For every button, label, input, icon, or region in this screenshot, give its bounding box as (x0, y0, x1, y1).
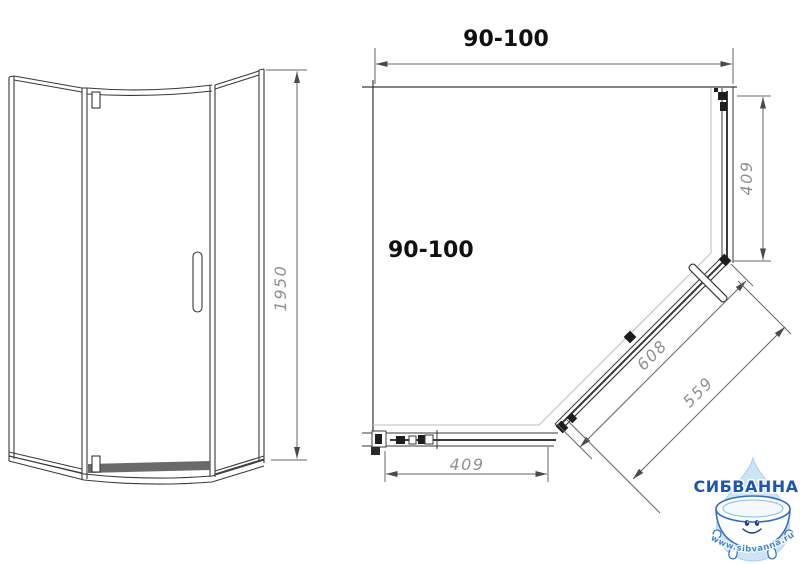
front-height-label: 1950 (271, 265, 290, 312)
right-panel-top-edge (215, 71, 259, 89)
door-hinge-bottom (92, 456, 100, 472)
bottom-side-label: 409 (449, 455, 484, 474)
right-panel-bottom-edge (215, 456, 264, 474)
door-outer-label: 608 (633, 336, 671, 374)
technical-drawing-page: 1950 (0, 0, 800, 564)
door-glass-label: 559 (679, 373, 717, 411)
wall-profile-bracket (718, 92, 727, 100)
glass-clamp (396, 436, 405, 444)
front-view (9, 69, 264, 484)
door-roller (624, 331, 637, 344)
watermark-logo: СИБВАННА www.sibvanna.ru (693, 458, 798, 561)
shower-enclosure-drawing: 1950 (0, 0, 800, 564)
door-right-post (210, 85, 215, 477)
right-fixed-panel (714, 87, 733, 263)
bottom-fixed-panel (362, 430, 558, 455)
door-top-beam (87, 85, 212, 95)
mascot-left-eye (745, 520, 749, 526)
door-handle (193, 252, 202, 312)
left-panel-top-edge (14, 76, 82, 92)
width-extension-lines (375, 48, 733, 84)
plan-view: 90-100 90-100 409 409 608 559 (362, 27, 791, 513)
mascot-right-eye (755, 520, 759, 526)
door-outer-dimension-line (580, 281, 746, 447)
right-side-label: 409 (737, 160, 756, 195)
glass-clamp (720, 102, 727, 111)
door-left-post (82, 88, 87, 479)
door-threshold-strip (88, 461, 210, 473)
door-hinge-top (92, 92, 100, 108)
plan-width-label: 90-100 (463, 27, 549, 52)
bathtub-rim-inner (723, 500, 783, 517)
right-back-post (259, 69, 264, 463)
plan-depth-label: 90-100 (388, 238, 474, 263)
left-back-post (9, 76, 14, 461)
brand-name: СИБВАННА (693, 477, 798, 496)
